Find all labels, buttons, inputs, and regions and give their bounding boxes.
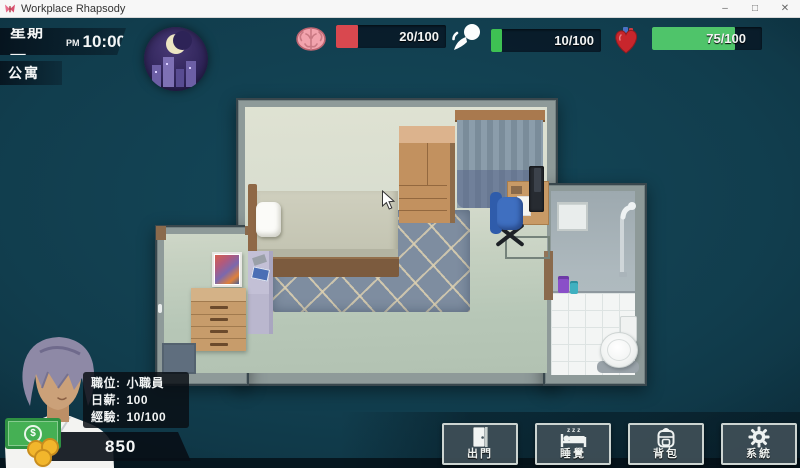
stat-energy: 10/100 [449, 22, 601, 59]
desk-phone [534, 168, 541, 192]
exp-value: 10/100 [127, 409, 167, 426]
entrance-door-handle[interactable] [158, 304, 162, 313]
gear-icon [748, 426, 770, 448]
mental-bar: 20/100 [336, 25, 446, 48]
desk-pad [511, 186, 522, 194]
time-display: 星期一 PM 10:00 [0, 28, 126, 55]
shelf-item-gray [252, 254, 267, 266]
location-label: 公寓 [8, 63, 40, 83]
entrance-door-frame [156, 226, 166, 240]
wardrobe[interactable] [399, 126, 455, 223]
location-display: 公寓 [0, 61, 62, 85]
system-button[interactable]: 系統 [721, 423, 797, 465]
wage-value: 100 [127, 392, 149, 409]
window-titlebar: Workplace Rhapsody – □ ✕ [0, 0, 800, 18]
sleep-button[interactable]: z z z 睡覺 [535, 423, 611, 465]
sleep-label: 睡覺 [560, 448, 586, 460]
stat-mental: 20/100 [294, 25, 446, 58]
bed-footboard [271, 257, 399, 277]
toilet[interactable] [600, 332, 638, 368]
mental-bar-fill [336, 25, 358, 48]
door-icon [470, 426, 490, 448]
job-value: 小職員 [127, 375, 165, 392]
backpack-icon [654, 426, 678, 448]
app-icon [4, 3, 16, 15]
shampoo-bottle [558, 276, 569, 293]
energy-icon [449, 22, 483, 59]
system-label: 系統 [746, 448, 772, 460]
job-label: 職位: [91, 375, 121, 392]
minimize-button[interactable]: – [710, 0, 740, 17]
energy-value: 10/100 [554, 29, 594, 52]
side-shelf[interactable] [248, 251, 273, 334]
energy-bar-fill [491, 29, 502, 52]
shelf-item-blue [251, 266, 270, 281]
bed-pillow [256, 202, 281, 237]
backpack-label: 背包 [653, 448, 679, 460]
health-bar: 75/100 [652, 27, 762, 50]
doormat [162, 343, 196, 374]
energy-bar: 10/100 [491, 29, 601, 52]
job-row: 職位: 小職員 [91, 375, 189, 392]
svg-text:z z z: z z z [567, 427, 581, 434]
wall-painting[interactable] [212, 252, 242, 287]
exp-label: 經驗: [91, 409, 121, 426]
wage-row: 日薪: 100 [91, 392, 189, 409]
money-amount: 850 [105, 437, 136, 457]
window-title: Workplace Rhapsody [21, 3, 125, 15]
action-bar: 出門 z z z 睡覺 背包 [442, 423, 797, 465]
soap-bottle [570, 281, 578, 294]
game-window: Workplace Rhapsody – □ ✕ [0, 0, 800, 468]
close-button[interactable]: ✕ [770, 0, 800, 17]
bathroom-vent [557, 202, 588, 231]
go-out-label: 出門 [467, 448, 493, 460]
health-value: 75/100 [706, 27, 746, 50]
stat-health: 75/100 [610, 25, 762, 60]
meridiem-label: PM [66, 38, 80, 48]
mental-value: 20/100 [399, 25, 439, 48]
money-icon: $ [5, 418, 61, 464]
go-out-button[interactable]: 出門 [442, 423, 518, 465]
wage-label: 日薪: [91, 392, 121, 409]
maximize-button[interactable]: □ [740, 0, 770, 17]
bed-icon: z z z [558, 426, 588, 448]
coin-icon [34, 449, 52, 467]
night-moon-icon [144, 27, 208, 91]
player-info-panel: 職位: 小職員 日薪: 100 經驗: 10/100 [83, 372, 189, 428]
heart-icon [610, 25, 644, 60]
backpack-button[interactable]: 背包 [628, 423, 704, 465]
mouse-cursor [381, 190, 396, 216]
office-chair[interactable] [497, 197, 523, 230]
shower[interactable] [612, 200, 638, 282]
brain-icon [294, 25, 328, 58]
exp-row: 經驗: 10/100 [91, 409, 189, 426]
dresser[interactable] [191, 288, 246, 351]
